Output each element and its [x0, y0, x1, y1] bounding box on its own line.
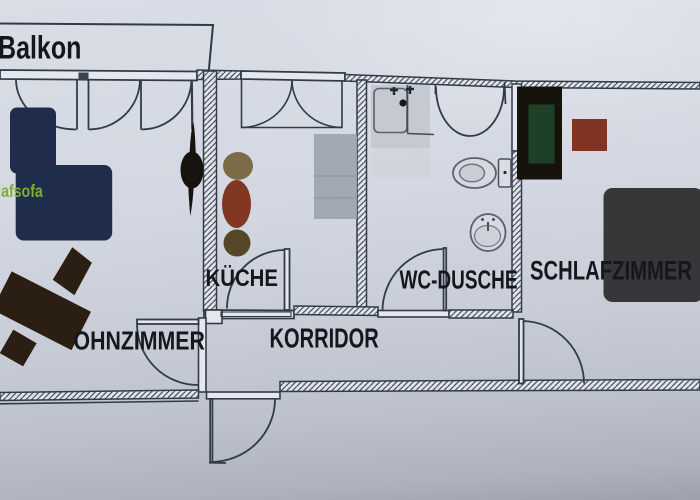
svg-text:Balkon: Balkon	[0, 30, 81, 66]
svg-text:WC-DUSCHE: WC-DUSCHE	[400, 265, 518, 295]
svg-text:KÜCHE: KÜCHE	[206, 264, 279, 291]
svg-text:OHNZIMMER: OHNZIMMER	[74, 327, 205, 357]
svg-text:hlafsofa: hlafsofa	[0, 183, 43, 202]
svg-text:KORRIDOR: KORRIDOR	[270, 324, 379, 355]
svg-text:SCHLAFZIMMER: SCHLAFZIMMER	[530, 256, 692, 287]
